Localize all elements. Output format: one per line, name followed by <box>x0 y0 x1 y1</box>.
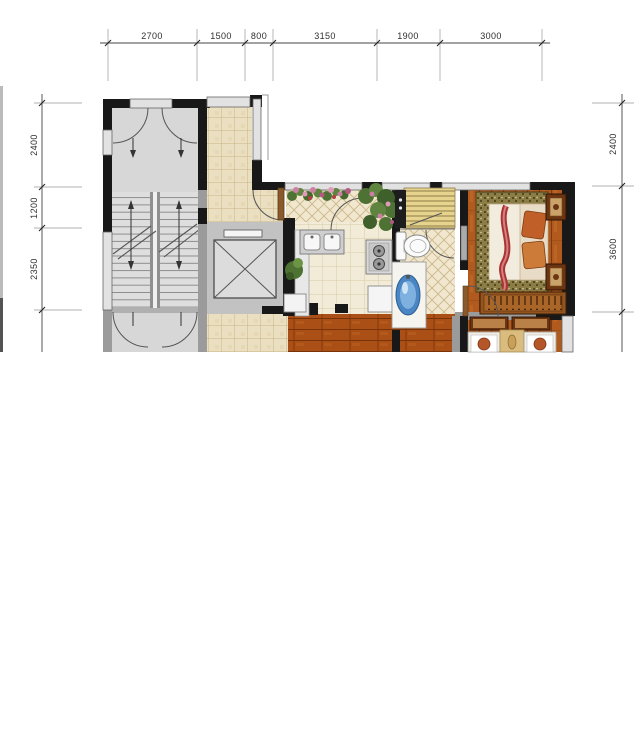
pillow-icon <box>522 241 547 269</box>
dimensions-left: 2400 1200 2350 <box>29 94 82 352</box>
laundry-area <box>404 188 455 228</box>
refrigerator-icon <box>368 286 392 312</box>
dim-label: 1900 <box>397 31 419 41</box>
stair-landing-bottom <box>112 313 198 352</box>
kitchen-sink-icon <box>300 230 344 254</box>
elevator-door <box>224 230 262 237</box>
window-top-corridor <box>207 97 250 107</box>
dimensions-top: 2700 1500 800 3150 1900 3000 <box>100 29 550 81</box>
stair-landing-top <box>112 107 198 192</box>
dim-label: 1200 <box>29 197 39 219</box>
scan-edge-artifact <box>0 86 3 352</box>
dimensions-right: 2400 3600 <box>592 94 634 352</box>
staircase <box>112 192 200 313</box>
second-bedroom <box>468 317 556 352</box>
floor-plan-page: 2700 1500 800 3150 1900 3000 2400 1200 2… <box>0 0 640 746</box>
dim-label: 2400 <box>608 133 618 155</box>
floor-plan-drawing: 2700 1500 800 3150 1900 3000 2400 1200 2… <box>0 0 640 746</box>
nightstand-icon <box>468 332 500 352</box>
nightstand-icon <box>524 332 556 352</box>
dim-label: 2700 <box>141 31 163 41</box>
dim-label: 800 <box>251 31 267 41</box>
washbasin-icon <box>392 262 426 328</box>
living-room-floor <box>288 314 455 352</box>
gas-stove-icon <box>366 240 392 274</box>
dim-label: 3600 <box>608 238 618 260</box>
dim-label: 2350 <box>29 258 39 280</box>
nightstand-icon <box>546 264 566 290</box>
hall-lower-floor <box>207 314 288 352</box>
dim-label: 3000 <box>480 31 502 41</box>
double-bed-icon <box>476 192 548 292</box>
corridor-floor <box>207 107 252 184</box>
door-leaf <box>278 188 284 220</box>
water-heater-icon <box>395 190 406 228</box>
dim-label: 2400 <box>29 134 39 156</box>
nightstand-icon <box>546 194 566 220</box>
wardrobe-hangers-icon <box>480 292 566 314</box>
dim-label: 1500 <box>210 31 232 41</box>
window-left-1 <box>103 130 112 155</box>
window-left-2 <box>103 232 112 310</box>
balcony-rail-line <box>262 95 268 160</box>
elevator <box>214 230 276 298</box>
appliance-icon <box>284 294 306 312</box>
window-corridor-east <box>253 99 261 160</box>
window-top-stair <box>130 99 172 108</box>
window-bedroom2-east <box>562 316 573 352</box>
pillow-icon <box>521 211 546 240</box>
door-leaf <box>463 286 468 316</box>
sliding-door-track <box>461 226 467 260</box>
dim-label: 3150 <box>314 31 336 41</box>
